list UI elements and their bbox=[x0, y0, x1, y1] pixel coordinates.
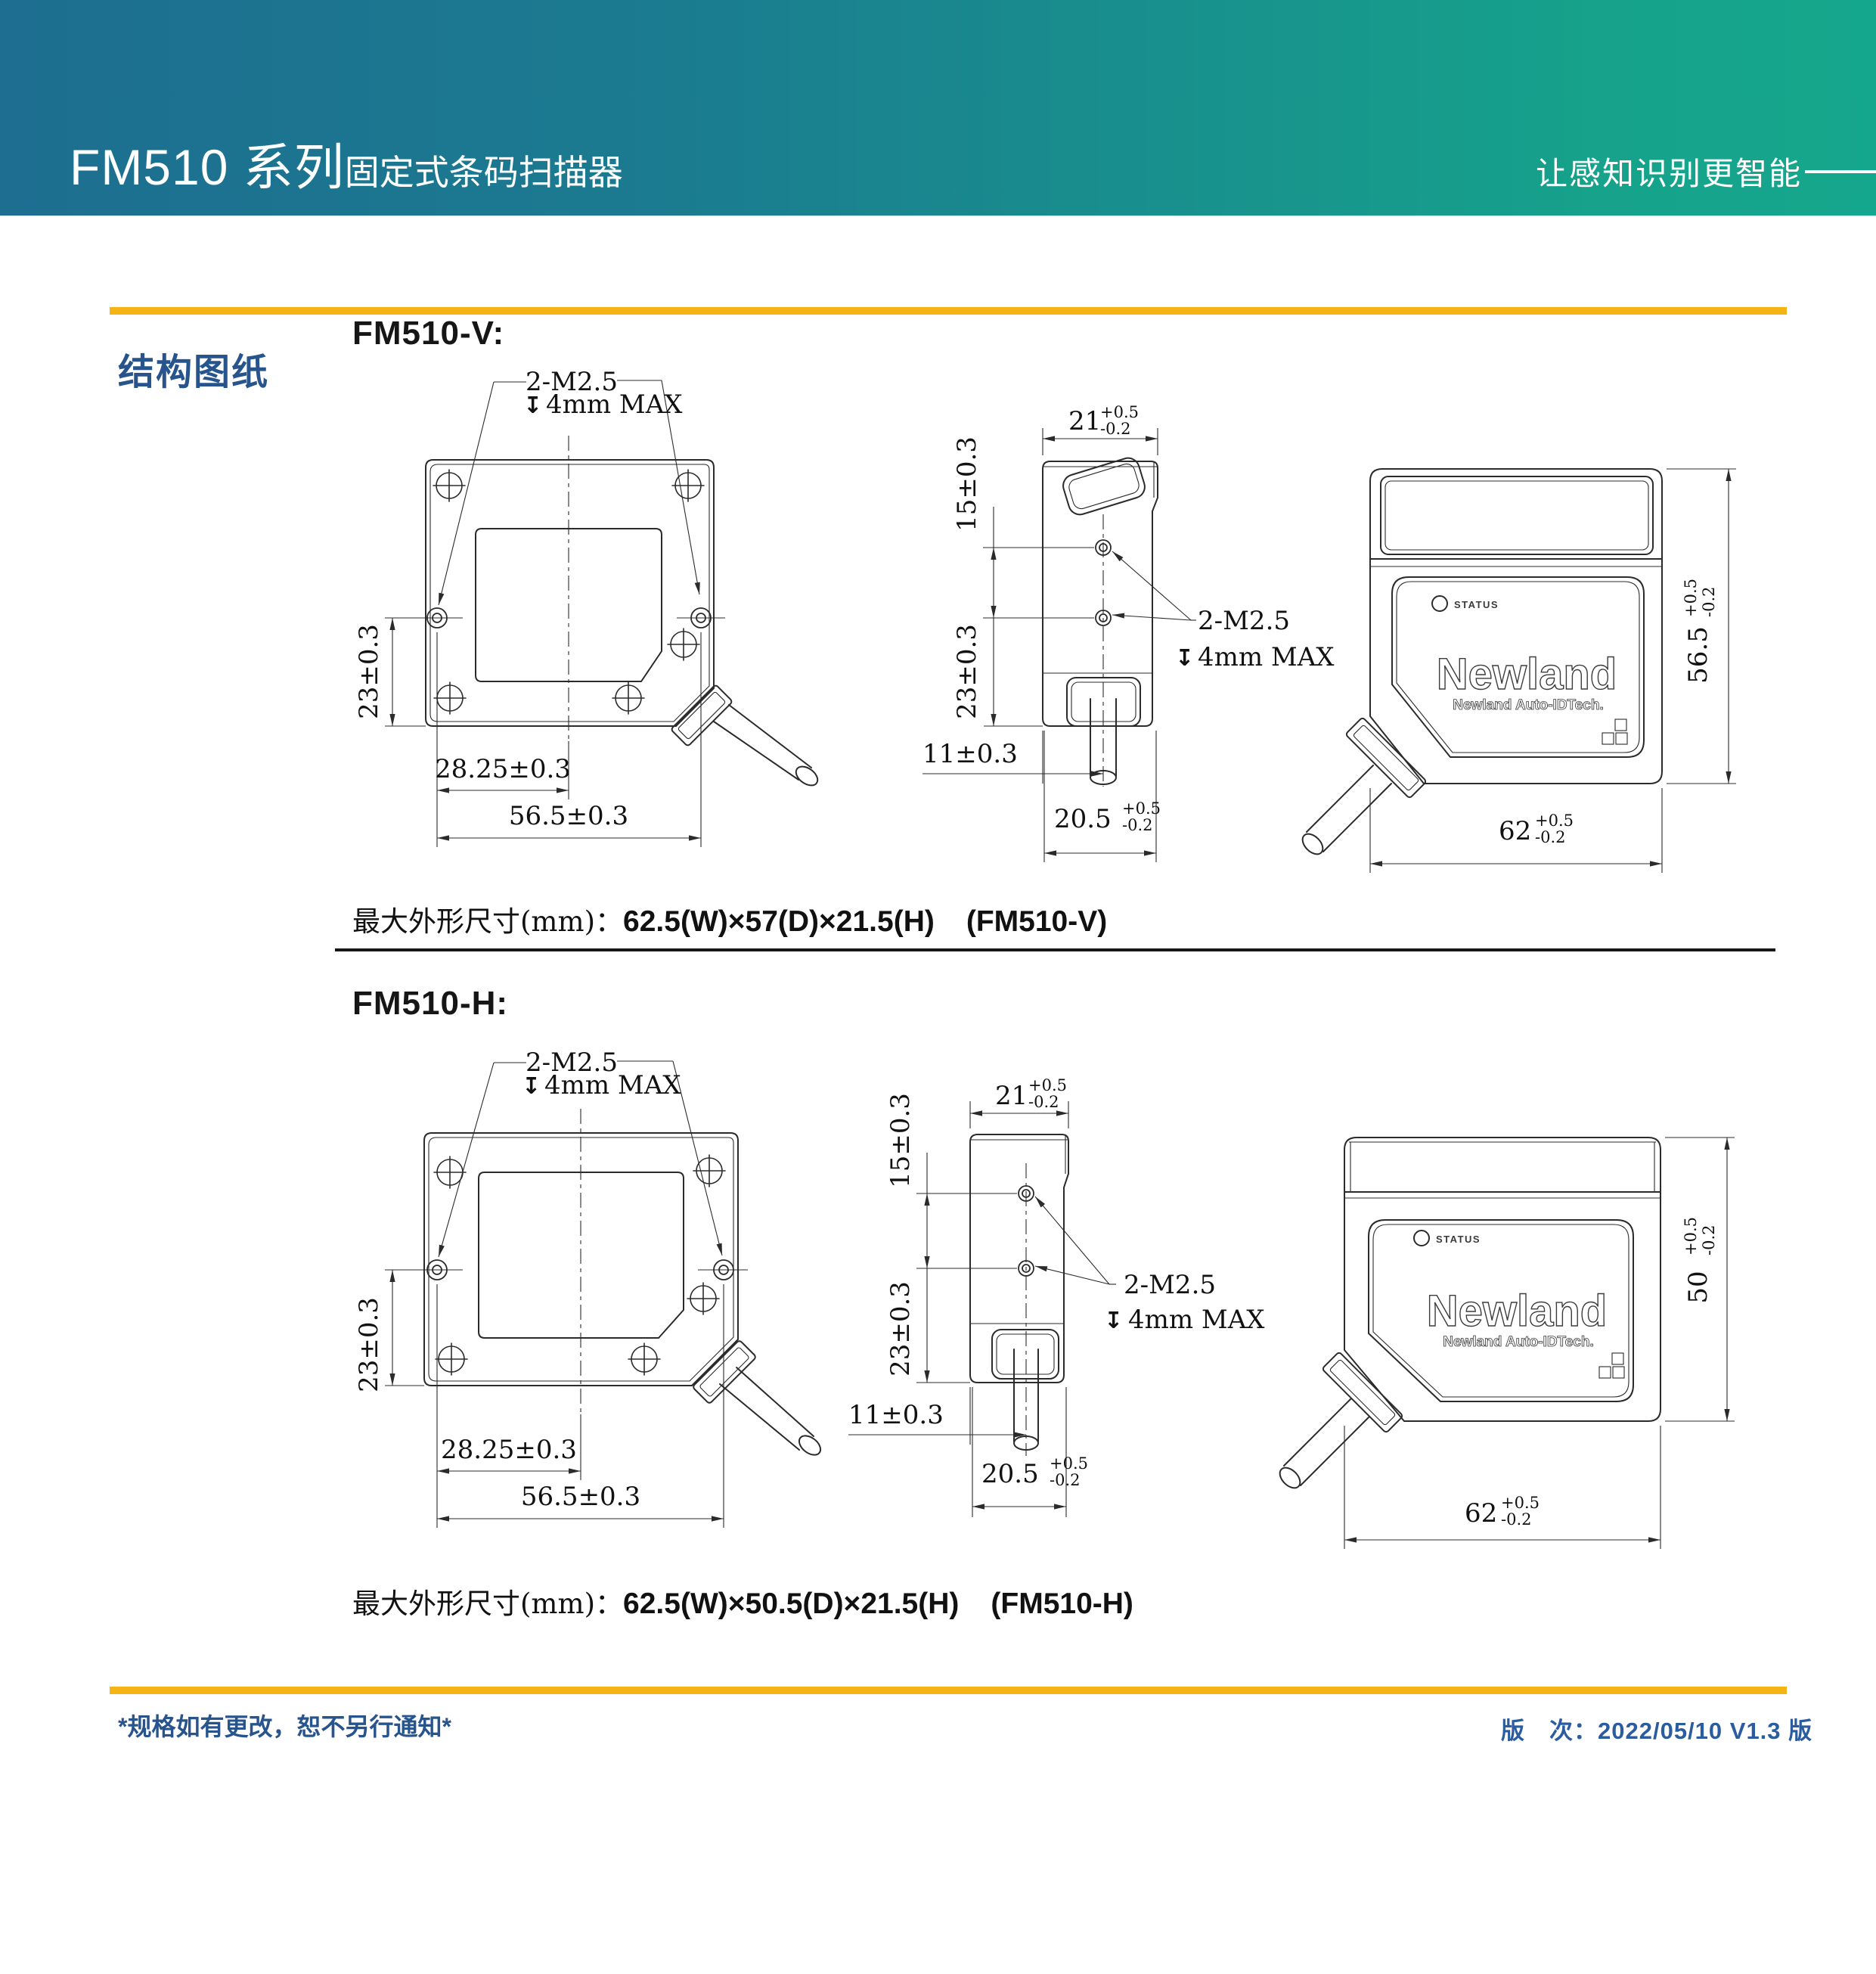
svg-text:+0.5: +0.5 bbox=[1501, 1494, 1540, 1512]
dim-23: 23±0.3 bbox=[885, 1281, 916, 1377]
summary-model-v: (FM510-V) bbox=[966, 905, 1107, 938]
heading-fm510-v: FM510-V: bbox=[352, 315, 504, 352]
svg-text:-0.2: -0.2 bbox=[1028, 1093, 1059, 1111]
heading-fm510-h: FM510-H: bbox=[352, 985, 508, 1023]
body-outline bbox=[1344, 1138, 1660, 1421]
connector-block bbox=[992, 1330, 1059, 1379]
drawing-rear-h: STATUS Newland Newland Auto-IDTech. 50 +… bbox=[1270, 1074, 1769, 1566]
cable-gland bbox=[1322, 1352, 1403, 1432]
summary-fm510-h: 最大外形尺寸(mm)：62.5(W)×50.5(D)×21.5(H)(FM510… bbox=[352, 1581, 1133, 1622]
summary-model-h: (FM510-H) bbox=[991, 1588, 1133, 1620]
dim-2825: 28.25±0.3 bbox=[441, 1435, 577, 1465]
svg-text:-0.2: -0.2 bbox=[1501, 1510, 1532, 1529]
slogan-text: 让感知识别更智能 bbox=[1536, 148, 1802, 194]
cable-gland bbox=[1345, 717, 1426, 798]
datasheet-page: FM510 系列固定式条码扫描器 让感知识别更智能 结构图纸 FM510-V: … bbox=[0, 0, 1876, 1974]
svg-text:+0.5: +0.5 bbox=[1028, 1076, 1067, 1094]
svg-text:-0.2: -0.2 bbox=[1050, 1471, 1081, 1489]
svg-text:+0.5: +0.5 bbox=[1100, 403, 1139, 421]
dim-23: 23±0.3 bbox=[354, 624, 384, 719]
dim-21: 21 bbox=[995, 1081, 1028, 1111]
dim-21: 21 bbox=[1068, 406, 1101, 436]
corner-marks bbox=[1602, 719, 1627, 744]
cable bbox=[1299, 765, 1391, 858]
dim-15: 15±0.3 bbox=[885, 1093, 916, 1188]
drawing-rear-v: STATUS Newland Newland Auto-IDTech. 56.5… bbox=[1270, 416, 1769, 900]
header-slogan: 让感知识别更智能 bbox=[1536, 148, 1876, 194]
page-title-subtitle: 固定式条码扫描器 bbox=[345, 145, 623, 195]
dim-23: 23±0.3 bbox=[952, 624, 982, 719]
screw-icon bbox=[668, 629, 699, 660]
screw-icon bbox=[433, 470, 465, 501]
svg-text:-0.2: -0.2 bbox=[1535, 828, 1566, 846]
svg-text:50: 50 bbox=[1683, 1271, 1713, 1303]
page-title: FM510 系列固定式条码扫描器 bbox=[70, 127, 623, 200]
dim-205: 20.5 bbox=[1054, 804, 1112, 834]
depth-symbol-icon: ↧ bbox=[522, 1073, 541, 1100]
summary-dims-v: 62.5(W)×57(D)×21.5(H) bbox=[623, 905, 935, 938]
newland-logo-sub: Newland Auto-IDTech. bbox=[1443, 1334, 1594, 1350]
status-label: STATUS bbox=[1436, 1234, 1481, 1245]
depth-symbol-icon: ↧ bbox=[523, 393, 542, 419]
svg-text:+0.5: +0.5 bbox=[1535, 812, 1574, 830]
slogan-dash bbox=[1805, 170, 1876, 173]
svg-text:+0.5: +0.5 bbox=[1682, 579, 1700, 617]
status-led bbox=[1432, 596, 1447, 611]
label-depth: 4mm MAX bbox=[546, 390, 683, 420]
cable bbox=[1276, 1399, 1369, 1491]
header-banner: FM510 系列固定式条码扫描器 让感知识别更智能 bbox=[0, 0, 1876, 216]
svg-text:-0.2: -0.2 bbox=[1700, 1225, 1718, 1256]
svg-text:56.5: 56.5 bbox=[1683, 626, 1713, 684]
dim-565: 56.5±0.3 bbox=[509, 801, 628, 831]
svg-text:-0.2: -0.2 bbox=[1122, 816, 1153, 834]
svg-text:+0.5: +0.5 bbox=[1122, 799, 1161, 818]
dim-565r: 56.5 +0.5 -0.2 bbox=[1682, 579, 1718, 684]
summary-dims-h: 62.5(W)×50.5(D)×21.5(H) bbox=[623, 1588, 959, 1620]
svg-text:62: 62 bbox=[1499, 816, 1531, 846]
depth-symbol-icon: ↧ bbox=[1175, 645, 1194, 672]
section-divider bbox=[335, 948, 1775, 951]
dim-23: 23±0.3 bbox=[354, 1297, 384, 1392]
footer-note: *规格如有更改，恕不另行通知* bbox=[118, 1708, 451, 1743]
svg-text:+0.5: +0.5 bbox=[1682, 1217, 1700, 1255]
scan-window-side bbox=[1060, 455, 1147, 517]
dim-205: 20.5 bbox=[981, 1459, 1039, 1489]
newland-logo: Newland bbox=[1427, 1287, 1608, 1336]
svg-text:-0.2: -0.2 bbox=[1700, 587, 1718, 618]
dim-565: 56.5±0.3 bbox=[521, 1482, 640, 1512]
corner-marks bbox=[1599, 1353, 1624, 1378]
accent-bar-bottom bbox=[110, 1687, 1787, 1694]
status-led bbox=[1414, 1231, 1429, 1246]
screw-icon bbox=[436, 1343, 467, 1375]
dim-2825: 28.25±0.3 bbox=[435, 754, 571, 784]
screw-icon bbox=[612, 682, 644, 714]
cable-gland bbox=[693, 1340, 757, 1404]
drawing-side-v: 21 +0.5 -0.2 15±0.3 23±0.3 2-M2.5 ↧ 4mm … bbox=[870, 363, 1338, 877]
section-label: 结构图纸 bbox=[118, 342, 269, 395]
dim-62: 62 +0.5 -0.2 bbox=[1499, 812, 1574, 846]
depth-symbol-icon: ↧ bbox=[1104, 1308, 1123, 1334]
screw-icon bbox=[434, 1156, 466, 1188]
label-depth: 4mm MAX bbox=[544, 1070, 681, 1100]
label-screw-spec: 2-M2.5 bbox=[1124, 1270, 1216, 1300]
window-strip bbox=[1381, 476, 1653, 554]
accent-bar-top bbox=[110, 307, 1787, 315]
drawing-front-h: 2-M2.5 ↧ 4mm MAX 23±0.3 28.25±0.3 56.5±0… bbox=[340, 1044, 854, 1543]
drawing-side-h: 21 +0.5 -0.2 15±0.3 23±0.3 2-M2.5 ↧ 4mm … bbox=[832, 1044, 1301, 1558]
summary-fm510-v: 最大外形尺寸(mm)：62.5(W)×57(D)×21.5(H)(FM510-V… bbox=[352, 899, 1107, 939]
svg-text:62: 62 bbox=[1465, 1498, 1497, 1529]
cable bbox=[720, 1367, 824, 1459]
dim-11: 11±0.3 bbox=[922, 739, 1018, 769]
body-outline bbox=[1370, 469, 1662, 784]
screw-icon bbox=[434, 682, 466, 714]
dim-15: 15±0.3 bbox=[952, 436, 982, 532]
dim-62: 62 +0.5 -0.2 bbox=[1465, 1494, 1540, 1529]
summary-prefix: 最大外形尺寸(mm)： bbox=[352, 1588, 623, 1620]
body-outline bbox=[426, 460, 714, 726]
newland-logo-sub: Newland Auto-IDTech. bbox=[1453, 697, 1604, 713]
footer-version: 版 次：2022/05/10 V1.3 版 bbox=[1501, 1712, 1812, 1746]
screw-icon bbox=[672, 470, 704, 501]
drawing-front-v: 2-M2.5 ↧ 4mm MAX 23±0.3 28.25±0.3 56.5±0… bbox=[340, 363, 854, 862]
status-label: STATUS bbox=[1454, 599, 1499, 610]
newland-logo: Newland bbox=[1437, 650, 1617, 699]
screw-icon bbox=[687, 1283, 719, 1314]
dim-11: 11±0.3 bbox=[848, 1400, 944, 1430]
cable bbox=[714, 705, 821, 789]
screw-icon bbox=[628, 1343, 660, 1375]
svg-text:+0.5: +0.5 bbox=[1050, 1454, 1088, 1473]
summary-prefix: 最大外形尺寸(mm)： bbox=[352, 905, 623, 938]
svg-text:-0.2: -0.2 bbox=[1100, 420, 1131, 438]
label-depth: 4mm MAX bbox=[1128, 1305, 1265, 1335]
dim-50: 50 +0.5 -0.2 bbox=[1682, 1217, 1718, 1304]
page-title-model: FM510 系列 bbox=[70, 127, 345, 200]
